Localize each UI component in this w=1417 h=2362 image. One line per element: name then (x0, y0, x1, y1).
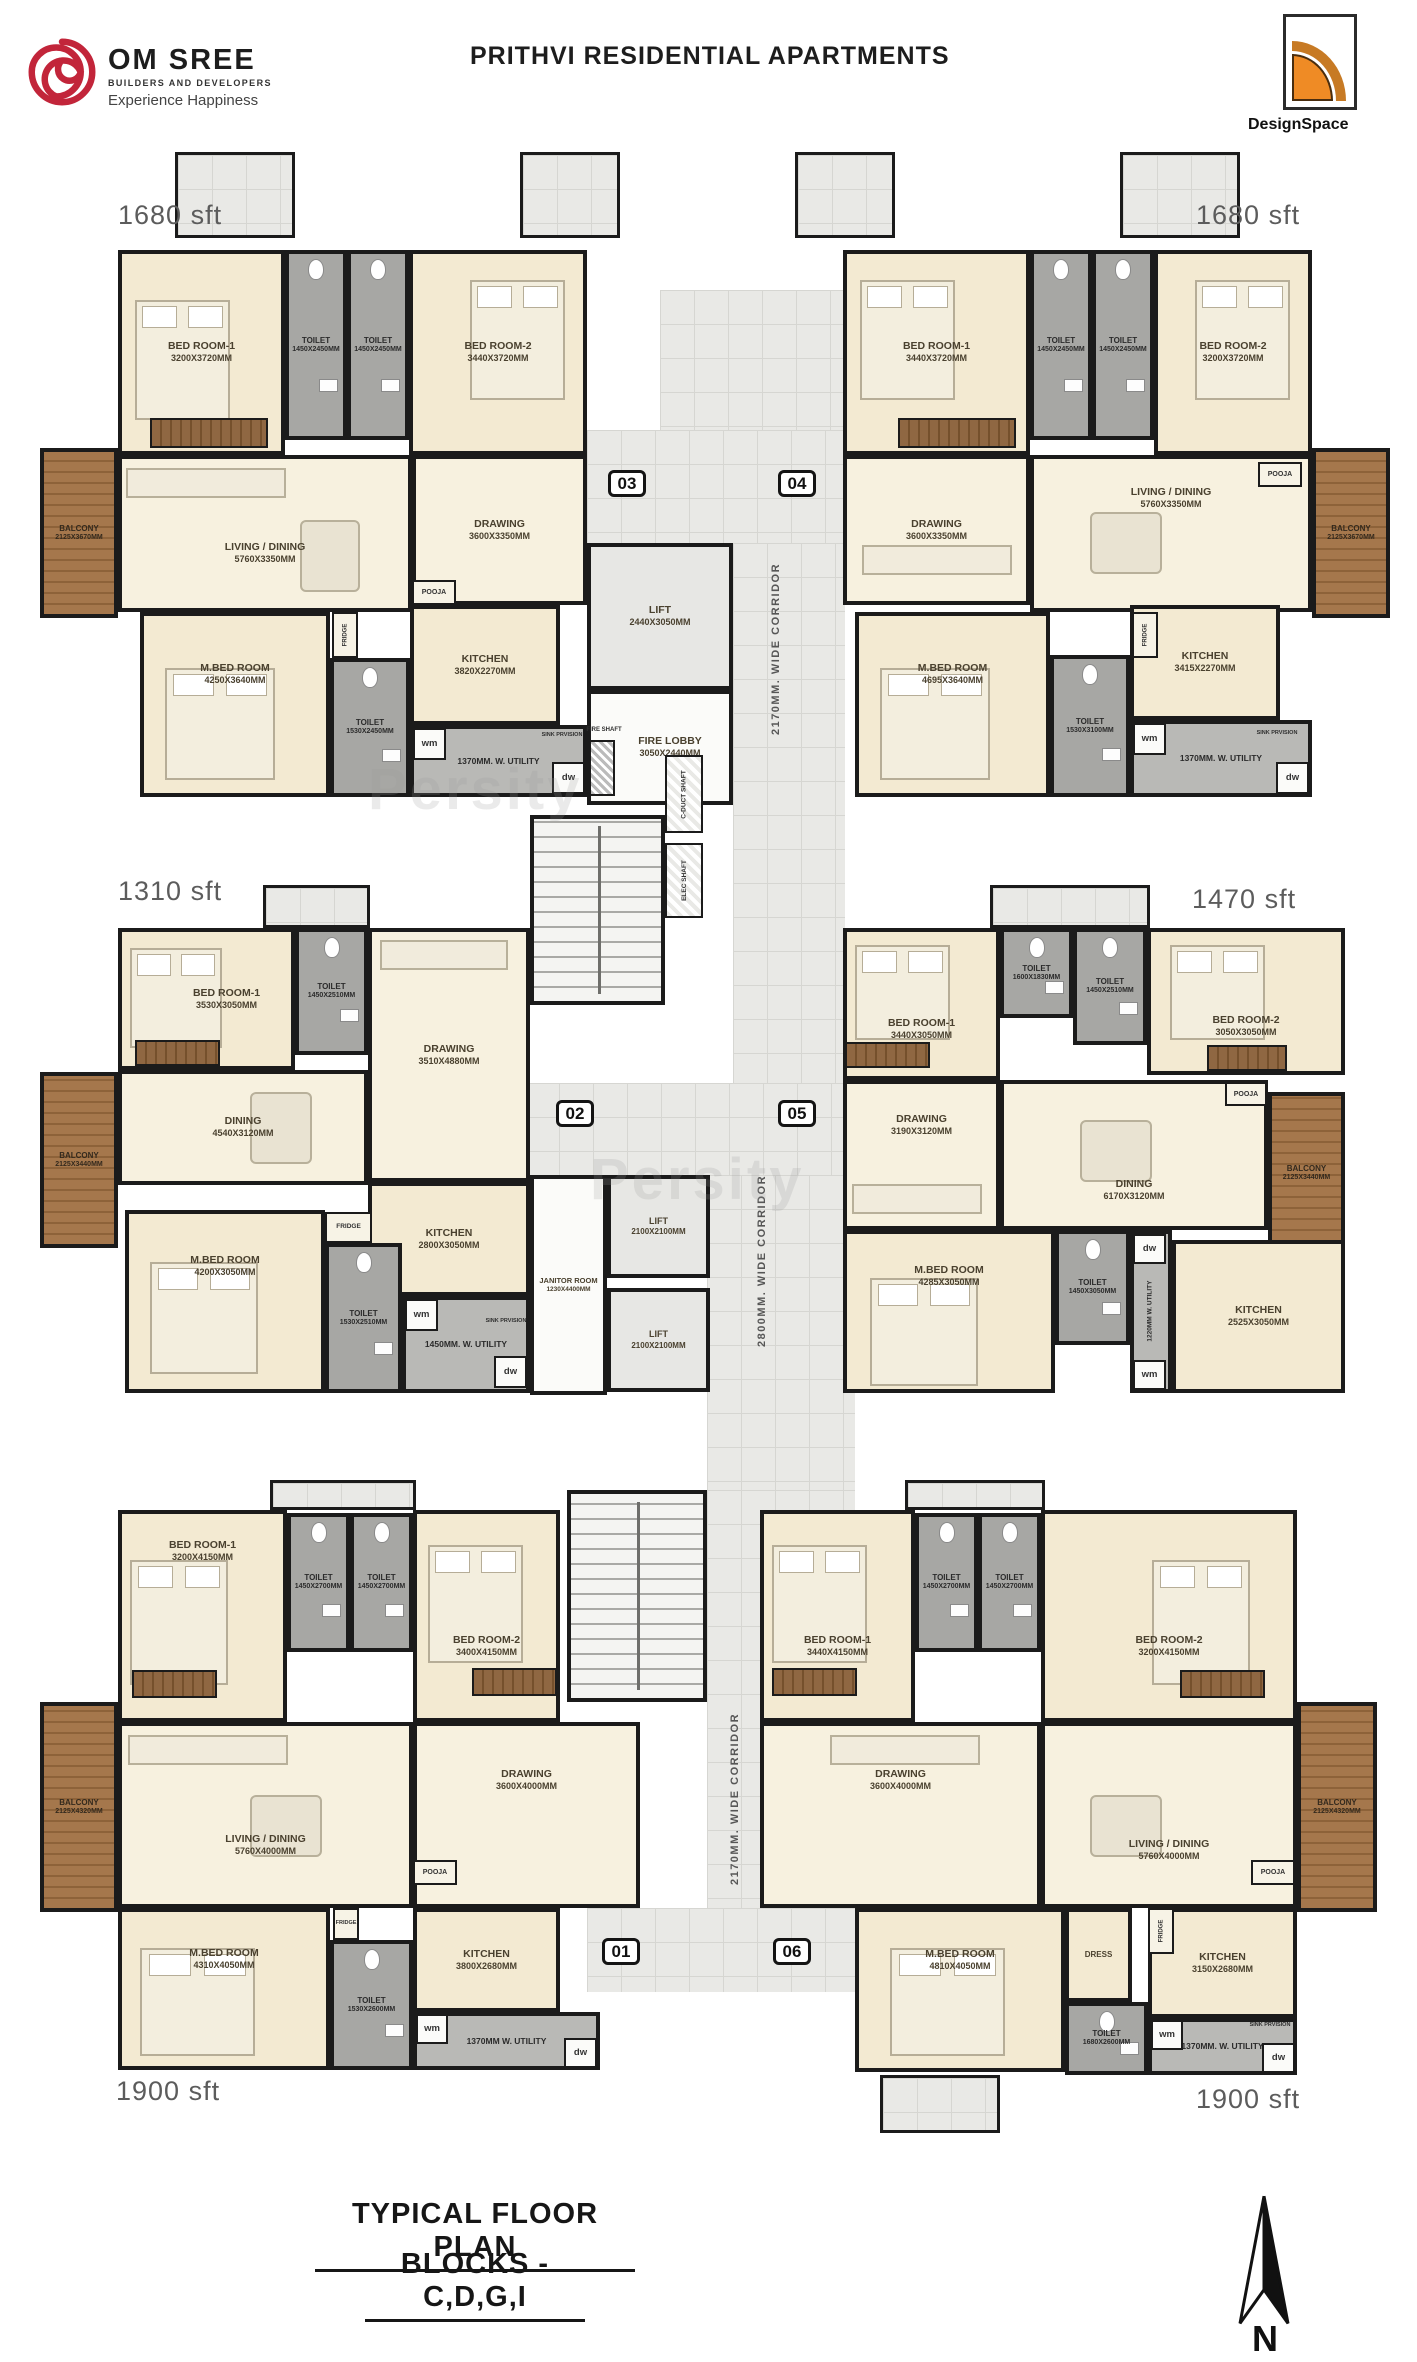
u02-dining-label: DINING (225, 1115, 262, 1127)
u04-mbed-label: M.BED ROOM (918, 662, 987, 674)
corridor-bottom-label: 2170MM. WIDE CORRIDOR (729, 1649, 741, 1949)
lift-mid-1-label: LIFT (649, 1216, 668, 1226)
u04-toilet-a-dims: 1450X2450MM (1037, 346, 1084, 355)
u06-toilet-b-label: TOILET (995, 1573, 1023, 1582)
u06-living-label: LIVING / DINING (1129, 1838, 1210, 1850)
u04-toilet-m-label: TOILET (1076, 717, 1104, 726)
u05-balcony-label: BALCONY (1287, 1164, 1327, 1173)
u01-living-label: LIVING / DINING (225, 1833, 306, 1845)
u03-mbed-label: M.BED ROOM (200, 662, 269, 674)
u05-mbed-label: M.BED ROOM (914, 1264, 983, 1276)
u05-toilet-b-label: TOILET (1096, 977, 1124, 986)
u04-balcony-label: BALCONY (1331, 524, 1371, 533)
u02-sink-note: SINK PRVISION (484, 1318, 528, 1324)
janitor-dims: 1230X4400MM (539, 1286, 597, 1294)
footer-subtitle: BLOCKS - C,D,G,I (365, 2248, 585, 2322)
u06-bed1-dims: 3440X4150MM (804, 1647, 871, 1658)
u06-dishwasher: dw (1262, 2043, 1295, 2073)
u03-sofa-icon (126, 468, 286, 498)
elec-shaft: ELEC SHAFT (665, 843, 703, 918)
u01-pooja: POOJA (413, 1860, 457, 1885)
u01-kitchen-label: KITCHEN (463, 1948, 510, 1960)
u02-sitout (263, 885, 370, 928)
u04-sitout-1 (795, 152, 895, 238)
lift-mid-2: LIFT2100X2100MM (607, 1288, 710, 1392)
u05-toilet-a-label: TOILET (1022, 964, 1050, 973)
u06-toilet-m: TOILET1680X2600MM (1065, 2002, 1148, 2075)
u03-living-label: LIVING / DINING (225, 541, 306, 553)
u03-kitchen-dims: 3820X2270MM (454, 666, 515, 677)
c-duct-shaft-label: C-DUCT SHAFT (681, 770, 688, 818)
u06-area-label: 1900 sft (1196, 2084, 1300, 2115)
u01-toilet-b-label: TOILET (367, 1573, 395, 1582)
u01-wardrobe-2-icon (472, 1668, 557, 1696)
u04-drawing: DRAWING3600X3350MM (843, 455, 1030, 605)
unit-plate-04: 04 (778, 470, 816, 497)
u04-kitchen-dims: 3415X2270MM (1174, 663, 1235, 674)
u05-dining-label: DINING (1116, 1178, 1153, 1190)
u06-bed2-dims: 3200X4150MM (1135, 1647, 1202, 1658)
watermark: Persity (368, 756, 582, 823)
u03-toilet-a: TOILET1450X2450MM (285, 250, 347, 440)
u04-bed1-dims: 3440X3720MM (903, 353, 970, 364)
u02-toilet-m-dims: 1530X2510MM (340, 1319, 387, 1328)
u02-toilet-a-dims: 1450X2510MM (308, 992, 355, 1001)
u04-balcony-dims: 2125X3670MM (1327, 534, 1374, 543)
lift-mid-1-dims: 2100X2100MM (631, 1227, 685, 1237)
u02-drawing-dims: 3510X4880MM (418, 1056, 479, 1067)
u02-bed1-label: BED ROOM-1 (193, 987, 260, 999)
brand-subtitle: BUILDERS AND DEVELOPERS (108, 78, 272, 88)
u06-utility-label: 1370MM. W. UTILITY (1181, 2041, 1263, 2052)
brand-tagline: Experience Happiness (108, 92, 272, 109)
u05-mbed-dims: 4285X3050MM (914, 1277, 983, 1288)
u05-kitchen: KITCHEN2525X3050MM (1172, 1240, 1345, 1393)
u05-sofa-icon (852, 1184, 982, 1214)
u03-fridge-label: FRIDGE (342, 624, 348, 647)
u01-toilet-a-label: TOILET (304, 1573, 332, 1582)
u04-dining-table-icon (1090, 512, 1162, 574)
u06-wardrobe-2-icon (1180, 1670, 1265, 1698)
u05-toilet-m-dims: 1450X3050MM (1069, 1288, 1116, 1297)
u04-toilet-a: TOILET1450X2450MM (1030, 250, 1092, 440)
u05-toilet-m-label: TOILET (1078, 1278, 1106, 1287)
u01-bed2-dims: 3400X4150MM (453, 1647, 520, 1658)
u03-bed2-dims: 3440X3720MM (464, 353, 531, 364)
u06-toilet-a-dims: 1450X2700MM (923, 1583, 970, 1592)
u06-mbed-label: M.BED ROOM (925, 1948, 994, 1960)
u04-balcony: BALCONY2125X3670MM (1312, 448, 1390, 618)
u01-toilet-b: TOILET1450X2700MM (350, 1513, 413, 1652)
lift-top-dims: 2440X3050MM (629, 617, 690, 628)
u05-kitchen-label: KITCHEN (1235, 1304, 1282, 1316)
lift-mid-2-dims: 2100X2100MM (631, 1341, 685, 1351)
lift-top-label: LIFT (649, 604, 671, 616)
u03-sink-note: SINK PRVISION (540, 732, 584, 738)
u04-fridge-label: FRIDGE (1142, 624, 1148, 647)
designspace-logo-icon (1283, 14, 1357, 110)
lift-top: LIFT2440X3050MM (587, 543, 733, 690)
u01-toilet-a: TOILET1450X2700MM (287, 1513, 350, 1652)
u04-sink-note: SINK PRVISION (1255, 730, 1299, 736)
u06-mbed-dims: 4810X4050MM (925, 1961, 994, 1972)
u05-mbed-icon (870, 1278, 978, 1386)
brand-block: OM SREE BUILDERS AND DEVELOPERS Experien… (108, 46, 272, 109)
designspace-label: DesignSpace (1248, 116, 1348, 134)
watermark-2: Persity (590, 1146, 804, 1213)
u06-sink-note: SINK PRVISION (1248, 2022, 1292, 2028)
floor-plan-page: 2170MM. WIDE CORRIDOR 2800MM. WIDE CORRI… (0, 0, 1417, 2362)
u04-fridge: FRIDGE (1132, 612, 1158, 658)
unit-plate-05: 05 (778, 1100, 816, 1127)
u06-toilet-a: TOILET1450X2700MM (915, 1513, 978, 1652)
u06-sofa-icon (830, 1735, 980, 1765)
u03-kitchen: KITCHEN3820X2270MM (410, 605, 560, 725)
u04-area-label: 1680 sft (1196, 200, 1300, 231)
brand-logo-icon (26, 36, 98, 108)
u05-toilet-m: TOILET1450X3050MM (1055, 1230, 1130, 1345)
u06-pooja: POOJA (1251, 1860, 1295, 1885)
u04-bed2-dims: 3200X3720MM (1199, 353, 1266, 364)
u06-kitchen-dims: 3150X2680MM (1192, 1964, 1253, 1975)
u06-dress-label: DRESS (1085, 1950, 1113, 1959)
janitor-label: JANITOR ROOM (539, 1276, 597, 1285)
u04-toilet-a-label: TOILET (1047, 336, 1075, 345)
u03-fridge: FRIDGE (332, 612, 358, 658)
u05-wardrobe-2-icon (1207, 1045, 1287, 1071)
u06-washing-machine: wm (1151, 2020, 1183, 2050)
u02-sofa-icon (380, 940, 508, 970)
u06-bed1-label: BED ROOM-1 (804, 1634, 871, 1646)
u05-bed1-label: BED ROOM-1 (888, 1017, 955, 1029)
u06-dress: DRESS (1065, 1908, 1132, 2002)
u06-balcony-dims: 2125X4320MM (1313, 1808, 1360, 1817)
u02-dining-dims: 4540X3120MM (212, 1128, 273, 1139)
u01-utility-label: 1370MM W. UTILITY (467, 2036, 547, 2047)
u02-kitchen-label: KITCHEN (426, 1227, 473, 1239)
u01-wardrobe-1-icon (132, 1670, 217, 1698)
unit-plate-06: 06 (773, 1938, 811, 1965)
u01-drawing-label: DRAWING (501, 1768, 552, 1780)
u05-toilet-a-dims: 1600X1830MM (1013, 974, 1060, 983)
u03-dining-table-icon (300, 520, 360, 592)
u03-living-dims: 5760X3350MM (225, 554, 306, 565)
u01-toilet-b-dims: 1450X2700MM (358, 1583, 405, 1592)
u03-drawing-label: DRAWING (474, 518, 525, 530)
u02-balcony-label: BALCONY (59, 1151, 99, 1160)
u06-fridge: FRIDGE (1148, 1908, 1174, 1954)
lift-mid-2-label: LIFT (649, 1329, 668, 1339)
u03-toilet-m-label: TOILET (356, 718, 384, 727)
u06-toilet-a-label: TOILET (932, 1573, 960, 1582)
u01-sofa-icon (128, 1735, 288, 1765)
u04-toilet-b-label: TOILET (1109, 336, 1137, 345)
u02-drawing-label: DRAWING (424, 1043, 475, 1055)
u04-dishwasher: dw (1276, 762, 1309, 794)
c-duct-shaft: C-DUCT SHAFT (665, 755, 703, 833)
u02-mbed-label: M.BED ROOM (190, 1254, 259, 1266)
u05-utility-label: 1220MM W. UTILITY (1147, 1281, 1155, 1342)
u01-bed2-label: BED ROOM-2 (453, 1634, 520, 1646)
u03-area-label: 1680 sft (118, 200, 222, 231)
u05-toilet-b: TOILET1450X2510MM (1073, 928, 1147, 1045)
u06-kitchen-label: KITCHEN (1199, 1951, 1246, 1963)
u06-living-dims: 5760X4000MM (1129, 1851, 1210, 1862)
u01-sitout (270, 1480, 416, 1510)
north-arrow-icon (1228, 2192, 1300, 2330)
u01-area-label: 1900 sft (116, 2076, 220, 2107)
u02-balcony-dims: 2125X3440MM (55, 1161, 102, 1170)
u04-pooja: POOJA (1258, 462, 1302, 487)
u02-area-label: 1310 sft (118, 876, 222, 907)
unit-plate-02: 02 (556, 1100, 594, 1127)
u02-mbed-dims: 4200X3050MM (190, 1267, 259, 1278)
staircase-top (530, 815, 665, 1005)
u01-bed1-icon (130, 1560, 228, 1685)
fire-shaft-label: FIRE SHAFT (584, 727, 624, 734)
u04-mbed-dims: 4695X3640MM (918, 675, 987, 686)
u03-bed1-label: BED ROOM-1 (168, 340, 235, 352)
u05-drawing-dims: 3190X3120MM (891, 1126, 952, 1137)
u05-dishwasher: dw (1133, 1234, 1166, 1264)
brand-name: OM SREE (108, 46, 272, 75)
u02-washing-machine: wm (405, 1299, 438, 1331)
u03-pooja: POOJA (412, 580, 456, 605)
u01-drawing-dims: 3600X4000MM (496, 1781, 557, 1792)
elec-shaft-label: ELEC SHAFT (681, 860, 688, 901)
u02-toilet-m-label: TOILET (349, 1309, 377, 1318)
u02-fridge: FRIDGE (325, 1212, 372, 1243)
corridor-top-stub (660, 290, 845, 432)
u04-living-dims: 5760X3350MM (1131, 499, 1212, 510)
u04-toilet-m-dims: 1530X3100MM (1066, 727, 1113, 736)
u05-bed2-label: BED ROOM-2 (1212, 1014, 1279, 1026)
u04-drawing-dims: 3600X3350MM (906, 531, 967, 542)
u01-balcony-dims: 2125X4320MM (55, 1808, 102, 1817)
u02-dishwasher: dw (494, 1356, 527, 1388)
u01-toilet-a-dims: 1450X2700MM (295, 1583, 342, 1592)
u04-living-label: LIVING / DINING (1131, 486, 1212, 498)
u01-balcony-label: BALCONY (59, 1798, 99, 1807)
corridor-top-label: 2170MM. WIDE CORRIDOR (770, 499, 782, 799)
u03-drawing-dims: 3600X3350MM (469, 531, 530, 542)
u05-dining-table-icon (1080, 1120, 1152, 1182)
u01-balcony: BALCONY2125X4320MM (40, 1702, 118, 1912)
u03-mbed-dims: 4250X3640MM (200, 675, 269, 686)
u02-kitchen-dims: 2800X3050MM (418, 1240, 479, 1251)
u03-toilet-b-label: TOILET (364, 336, 392, 345)
u06-wardrobe-1-icon (772, 1668, 857, 1696)
u01-toilet-m-dims: 1530X2600MM (348, 2006, 395, 2015)
u01-washing-machine: wm (416, 2014, 448, 2044)
u01-toilet-m: TOILET1530X2600MM (330, 1940, 413, 2070)
u06-bed2-label: BED ROOM-2 (1135, 1634, 1202, 1646)
u05-pooja: POOJA (1225, 1082, 1267, 1106)
u03-kitchen-label: KITCHEN (462, 653, 509, 665)
u05-kitchen-dims: 2525X3050MM (1228, 1317, 1289, 1328)
u03-balcony-label: BALCONY (59, 524, 99, 533)
u03-balcony-dims: 2125X3670MM (55, 534, 102, 543)
u01-mbed-dims: 4310X4050MM (189, 1960, 258, 1971)
u02-toilet-a-label: TOILET (317, 982, 345, 991)
u05-bed2-dims: 3050X3050MM (1212, 1027, 1279, 1038)
u02-balcony: BALCONY2125X3440MM (40, 1072, 118, 1248)
u06-toilet-b-dims: 1450X2700MM (986, 1583, 1033, 1592)
u06-balcony-label: BALCONY (1317, 1798, 1357, 1807)
u04-wardrobe-icon (898, 418, 1016, 448)
u03-toilet-m-dims: 1530X2450MM (346, 728, 393, 737)
unit-plate-03: 03 (608, 470, 646, 497)
u04-washing-machine: wm (1133, 723, 1166, 755)
u06-toilet-m-dims: 1680X2600MM (1083, 2039, 1130, 2048)
u01-toilet-m-label: TOILET (357, 1996, 385, 2005)
u04-utility-label: 1370MM. W. UTILITY (1180, 753, 1262, 764)
u05-area-label: 1470 sft (1192, 884, 1296, 915)
u01-living-dims: 5760X4000MM (225, 1846, 306, 1857)
u05-balcony-dims: 2125X3440MM (1283, 1174, 1330, 1183)
u05-washing-machine: wm (1133, 1360, 1166, 1390)
corridor-mid-strip (707, 1175, 855, 1490)
u05-toilet-b-dims: 1450X2510MM (1086, 987, 1133, 996)
u02-toilet-a: TOILET1450X2510MM (295, 928, 368, 1055)
u06-toilet-b: TOILET1450X2700MM (978, 1513, 1041, 1652)
u02-toilet-m: TOILET1530X2510MM (325, 1243, 402, 1393)
u03-bed1-dims: 3200X3720MM (168, 353, 235, 364)
u03-balcony: BALCONY2125X3670MM (40, 448, 118, 618)
u05-toilet-a: TOILET1600X1830MM (1000, 928, 1073, 1018)
fire-lobby-label: FIRE LOBBY (638, 735, 702, 747)
u03-toilet-b: TOILET1450X2450MM (347, 250, 409, 440)
corridor-right-strip (733, 543, 845, 1083)
u01-dishwasher: dw (564, 2038, 597, 2068)
u05-dining-dims: 6170X3120MM (1103, 1191, 1164, 1202)
u06-balcony: BALCONY2125X4320MM (1297, 1702, 1377, 1912)
page-title: PRITHVI RESIDENTIAL APARTMENTS (470, 42, 950, 71)
u01-bed1-dims: 3200X4150MM (169, 1552, 236, 1563)
u01-kitchen: KITCHEN3800X2680MM (413, 1908, 560, 2012)
u02-utility-label: 1450MM. W. UTILITY (425, 1339, 507, 1350)
u04-kitchen-label: KITCHEN (1182, 650, 1229, 662)
unit-plate-01: 01 (602, 1938, 640, 1965)
u06-drawing-label: DRAWING (875, 1768, 926, 1780)
u05-wardrobe-1-icon (845, 1042, 930, 1068)
u04-toilet-m: TOILET1530X3100MM (1050, 655, 1130, 797)
u02-wardrobe-icon (135, 1040, 220, 1066)
staircase-bottom (567, 1490, 707, 1702)
u06-bed2-icon (1152, 1560, 1250, 1685)
u03-bed2-label: BED ROOM-2 (464, 340, 531, 352)
u05-bed1-dims: 3440X3050MM (888, 1030, 955, 1041)
u04-sofa-icon (862, 545, 1012, 575)
u04-toilet-b-dims: 1450X2450MM (1099, 346, 1146, 355)
entrance-porch (880, 2075, 1000, 2133)
u06-drawing-dims: 3600X4000MM (870, 1781, 931, 1792)
u03-toilet-b-dims: 1450X2450MM (354, 346, 401, 355)
u02-dining: DINING4540X3120MM (118, 1070, 368, 1185)
u03-wardrobe-icon (150, 418, 268, 448)
north-label: N (1252, 2318, 1278, 2360)
u01-fridge: FRIDGE (333, 1908, 359, 1940)
u04-drawing-label: DRAWING (911, 518, 962, 530)
u06-sitout (905, 1480, 1045, 1510)
u04-toilet-b: TOILET1450X2450MM (1092, 250, 1154, 440)
u04-bed1-label: BED ROOM-1 (903, 340, 970, 352)
u01-kitchen-dims: 3800X2680MM (456, 1961, 517, 1972)
u06-toilet-m-label: TOILET (1092, 2029, 1120, 2038)
u01-bed1-label: BED ROOM-1 (169, 1539, 236, 1551)
u01-mbed-label: M.BED ROOM (189, 1947, 258, 1959)
u05-balcony: BALCONY2125X3440MM (1268, 1092, 1345, 1255)
u03-toilet-a-label: TOILET (302, 336, 330, 345)
u05-sitout (990, 885, 1150, 928)
u06-fridge-label: FRIDGE (1158, 1920, 1164, 1943)
u05-drawing-label: DRAWING (896, 1113, 947, 1125)
u03-sitout-2 (520, 152, 620, 238)
u02-mbed-icon (150, 1262, 258, 1374)
u04-bed2-label: BED ROOM-2 (1199, 340, 1266, 352)
u03-toilet-a-dims: 1450X2450MM (292, 346, 339, 355)
u02-bed1-dims: 3530X3050MM (193, 1000, 260, 1011)
fire-shaft (589, 740, 615, 796)
